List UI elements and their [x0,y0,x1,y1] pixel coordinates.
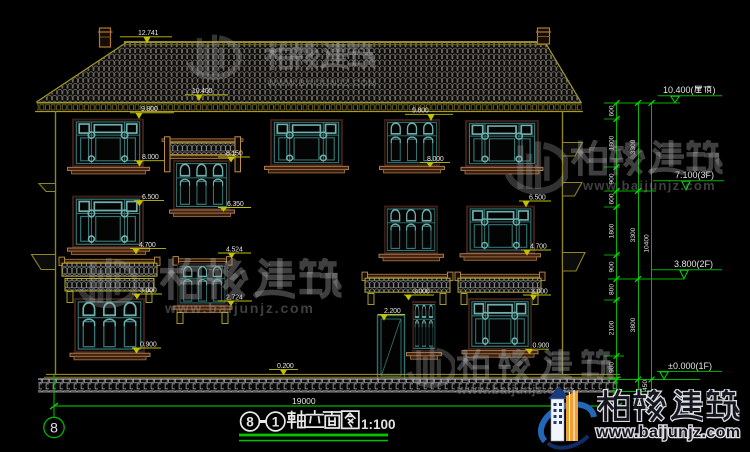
svg-text:2100: 2100 [609,320,616,335]
svg-text:3.000: 3.000 [413,289,430,296]
svg-text:3.800(2F): 3.800(2F) [674,259,713,269]
svg-text:9.800: 9.800 [412,108,429,115]
svg-text:19000: 19000 [292,396,316,406]
svg-text:www.baijunjz.com: www.baijunjz.com [164,300,315,316]
svg-text:3.000: 3.000 [531,289,548,296]
svg-text:0.200: 0.200 [277,363,294,370]
svg-text:0.900: 0.900 [140,342,157,349]
svg-text:WWW.BAIJUNJZ.COM: WWW.BAIJUNJZ.COM [267,78,377,89]
svg-text:8: 8 [246,415,254,430]
svg-text:6.500: 6.500 [529,195,546,202]
svg-text:800: 800 [609,284,616,295]
svg-text:): ) [713,85,716,95]
svg-text:0.900: 0.900 [533,343,550,350]
svg-text:12.741: 12.741 [138,30,159,37]
svg-text:450: 450 [642,380,649,391]
svg-text:2.200: 2.200 [384,308,401,315]
svg-text:900: 900 [609,261,616,272]
svg-text:1800: 1800 [609,223,616,238]
svg-text:10.400(: 10.400( [663,85,694,95]
svg-text:www.baijunjz.com: www.baijunjz.com [582,178,716,193]
svg-text:4.524: 4.524 [226,247,243,254]
svg-text:9.800: 9.800 [141,106,158,113]
svg-text:4.700: 4.700 [530,244,547,251]
svg-text:8: 8 [50,420,58,436]
svg-text:6.500: 6.500 [142,194,159,201]
svg-text:±0.000(1F): ±0.000(1F) [668,361,712,371]
svg-text:600: 600 [609,193,616,204]
svg-text:3300: 3300 [630,227,637,242]
svg-text:www.baijunjz.com: www.baijunjz.com [595,424,741,441]
svg-text:3.000: 3.000 [140,288,157,295]
svg-text:1: 1 [272,415,280,430]
svg-text:10400: 10400 [644,234,651,253]
svg-text:4.700: 4.700 [139,242,156,249]
svg-text:10.400: 10.400 [192,88,213,95]
svg-text:1:100: 1:100 [361,417,396,432]
svg-text:600: 600 [609,105,616,116]
svg-text:3800: 3800 [630,317,637,332]
svg-text:8.150: 8.150 [226,151,243,158]
svg-text:8.000: 8.000 [142,154,159,161]
svg-text:8.000: 8.000 [427,156,444,163]
svg-text:6.350: 6.350 [227,201,244,208]
